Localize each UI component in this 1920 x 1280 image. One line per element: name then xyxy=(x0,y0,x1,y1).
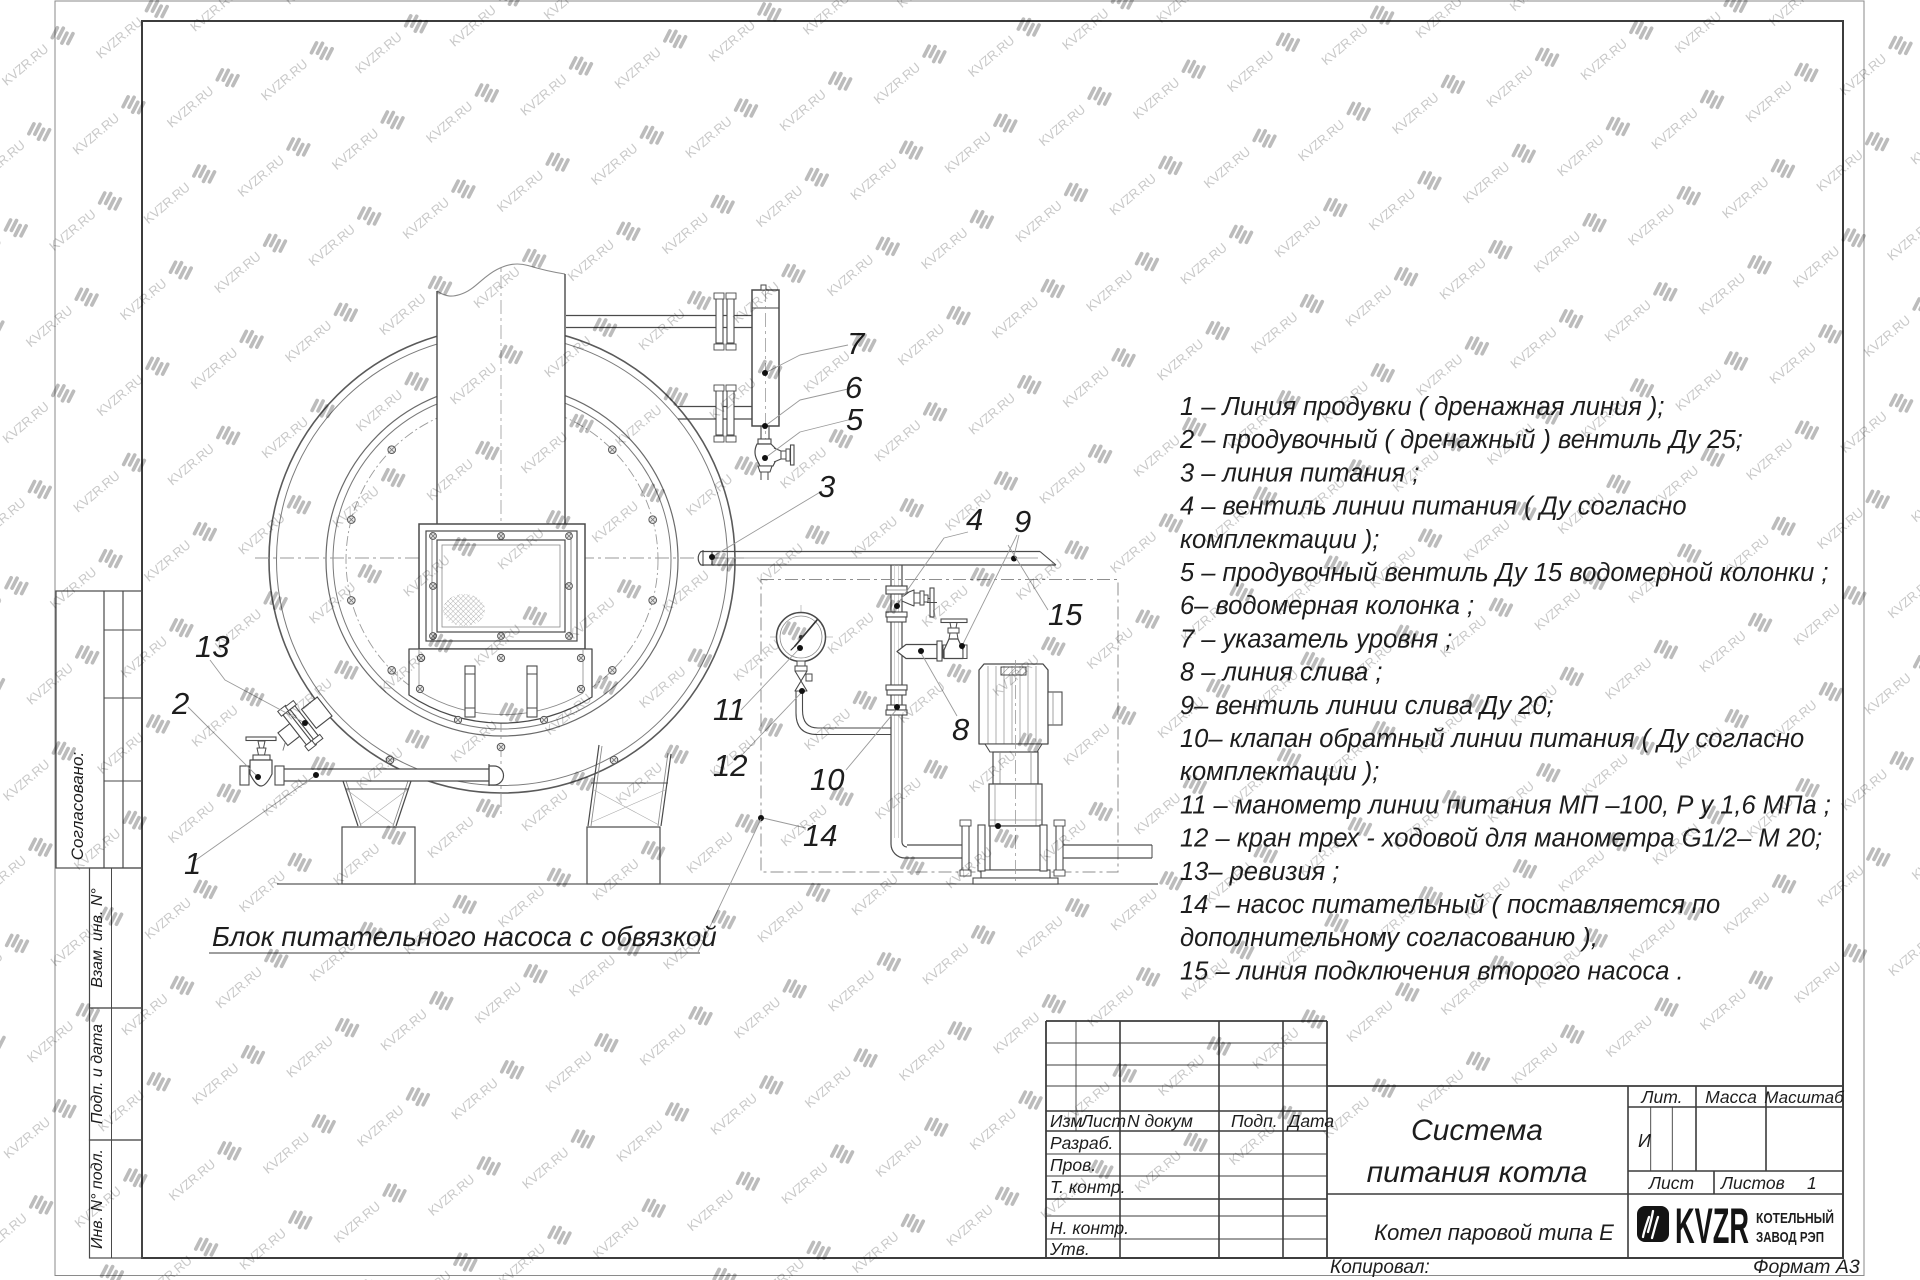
svg-text:Масса: Масса xyxy=(1705,1087,1757,1107)
svg-text:Блок питательного насоса с обв: Блок питательного насоса с обвязкой xyxy=(212,921,717,952)
svg-text:14 – насос питательный ( пос: 14 – насос питательный ( поставляется по xyxy=(1180,891,1720,919)
svg-text:11: 11 xyxy=(713,692,745,727)
svg-text:питания котла: питания котла xyxy=(1367,1156,1588,1189)
svg-text:Система: Система xyxy=(1411,1114,1543,1147)
svg-text:Формат А3: Формат А3 xyxy=(1753,1256,1860,1278)
svg-text:Масштаб: Масштаб xyxy=(1764,1088,1845,1107)
svg-text:Копировал:: Копировал: xyxy=(1330,1257,1430,1278)
svg-text:И: И xyxy=(1638,1131,1651,1151)
svg-text:6: 6 xyxy=(845,370,863,405)
svg-text:ЗАВОД РЭП: ЗАВОД РЭП xyxy=(1756,1229,1824,1246)
svg-text:Пров.: Пров. xyxy=(1050,1155,1096,1175)
svg-text:3: 3 xyxy=(818,469,835,504)
svg-text:Утв.: Утв. xyxy=(1049,1239,1090,1259)
svg-text:3 – линия питания ;: 3 – линия питания ; xyxy=(1180,459,1419,487)
svg-text:15 – линия подключения второг: 15 – линия подключения второго насоса . xyxy=(1180,957,1684,985)
svg-text:N докум: N докум xyxy=(1127,1111,1193,1131)
svg-text:15: 15 xyxy=(1048,597,1083,632)
svg-text:12 – кран трех - ходовой для: 12 – кран трех - ходовой для манометра G… xyxy=(1180,825,1822,853)
svg-text:Разраб.: Разраб. xyxy=(1050,1133,1113,1153)
svg-text:1: 1 xyxy=(1807,1173,1817,1193)
svg-text:КОТЕЛЬНЫЙ: КОТЕЛЬНЫЙ xyxy=(1756,1209,1834,1227)
svg-text:Лит.: Лит. xyxy=(1641,1087,1683,1107)
svg-text:Лист: Лист xyxy=(1080,1111,1126,1131)
svg-text:8: 8 xyxy=(952,712,970,747)
svg-text:9– вентиль линии слива Ду 20: 9– вентиль линии слива Ду 20; xyxy=(1180,692,1554,720)
svg-text:Листов: Листов xyxy=(1720,1173,1785,1193)
svg-text:9: 9 xyxy=(1014,504,1031,539)
svg-text:2: 2 xyxy=(171,686,189,721)
svg-text:Подп. и дата: Подп. и дата xyxy=(89,1024,106,1124)
svg-text:KVZR: KVZR xyxy=(1675,1198,1749,1254)
svg-text:Котел паровой типа Е: Котел паровой типа Е xyxy=(1374,1220,1614,1245)
svg-text:Н. контр.: Н. контр. xyxy=(1050,1218,1129,1238)
svg-text:Согласовано:: Согласовано: xyxy=(68,752,87,861)
svg-text:1: 1 xyxy=(184,846,201,881)
svg-text:Лист: Лист xyxy=(1648,1173,1694,1193)
svg-text:5: 5 xyxy=(846,402,864,437)
svg-text:2 – продувочный ( дренажный: 2 – продувочный ( дренажный ) вентиль Ду… xyxy=(1179,426,1743,454)
